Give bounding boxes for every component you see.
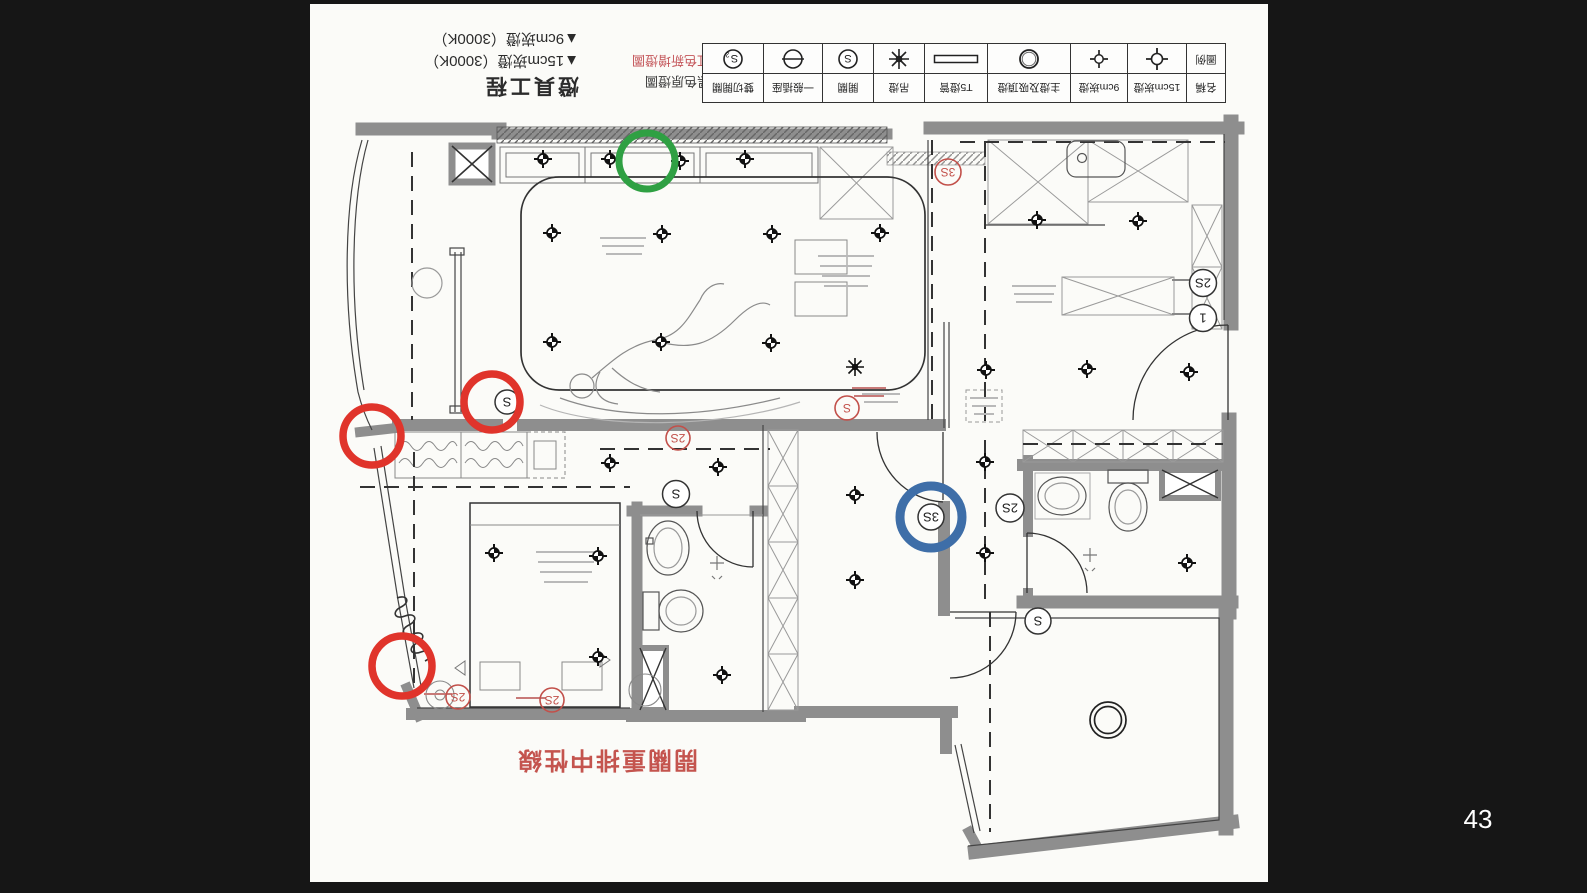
svg-text:3S: 3S <box>941 165 956 179</box>
downlight-symbol <box>713 666 731 684</box>
svg-text:S: S <box>844 53 851 65</box>
downlight-symbol <box>601 454 619 472</box>
downlight-symbol <box>976 544 994 562</box>
downlight-symbol <box>846 486 864 504</box>
svg-text:S: S <box>502 395 511 410</box>
legend-col-ceiling-light: 主燈及吸頂燈 <box>988 44 1071 102</box>
downlight-symbol <box>871 224 889 242</box>
legend-header-column: 名稱 圖例 <box>1187 44 1225 102</box>
page-title: 燈具工程 <box>383 72 579 98</box>
downlight-symbol <box>709 458 727 476</box>
legend-table: 名稱 圖例 15cm崁燈 9cm崁燈 主燈及吸頂燈 T5燈管 吊燈 開關 S 一… <box>702 43 1226 103</box>
presentation-slide: S S 2S S 2S 1 3S 3S 2S 2S 2S S 燈具工程 ▲15c… <box>0 0 1587 893</box>
ceiling-light-symbol <box>1090 702 1126 738</box>
downlight-symbol <box>1178 554 1196 572</box>
annotation-circles <box>343 133 962 696</box>
legend-notes: 黑色原燈圖 紅色新增燈圖 <box>596 45 710 91</box>
downlight-symbol <box>976 453 994 471</box>
title-block: 燈具工程 ▲15cm崁燈（3000K） ▲9cm崁燈（3000K） <box>383 12 579 100</box>
legend-col-downlight-15: 15cm崁燈 <box>1128 44 1187 102</box>
svg-text:S: S <box>671 487 680 502</box>
downlight-symbol <box>977 361 995 379</box>
svg-text:2S: 2S <box>545 693 560 707</box>
downlight-15cm-icon <box>1144 47 1170 73</box>
legend-label: T5燈管 <box>925 74 987 102</box>
bedroom2-closet <box>395 432 565 478</box>
note-original-plan: 黑色原燈圖 <box>596 70 710 91</box>
page-number: 43 <box>1448 804 1508 835</box>
downlight-symbol <box>1129 212 1147 230</box>
pendant-light-symbol <box>846 358 864 376</box>
hatched-wall-band <box>497 127 887 143</box>
downlight-symbol <box>1078 360 1096 378</box>
svg-text:S: S <box>731 53 738 65</box>
downlight-symbol <box>1180 363 1198 381</box>
legend-label: 吊燈 <box>874 74 924 102</box>
svg-text:2S: 2S <box>671 431 686 445</box>
downlight-symbol <box>846 571 864 589</box>
svg-text:1: 1 <box>1199 311 1206 326</box>
svg-text:2S: 2S <box>451 690 466 704</box>
two-way-switch-icon: S2 <box>721 48 745 72</box>
downlight-symbol <box>653 225 671 243</box>
ceiling-light-icon <box>1017 48 1041 72</box>
legend-label: 雙切開關 <box>703 74 763 102</box>
human-figure-sketch <box>540 284 800 423</box>
downlight-symbol <box>543 333 561 351</box>
pendant-light-icon <box>887 48 911 72</box>
downlight-symbol <box>652 333 670 351</box>
svg-text:S: S <box>843 401 851 415</box>
bathroom2 <box>1027 470 1148 593</box>
legend-label: 開關 <box>823 74 873 102</box>
title-bullet-9cm: ▲9cm崁燈（3000K） <box>383 28 579 47</box>
svg-text:2S: 2S <box>1002 501 1018 516</box>
plan-revision-note: 開關重排中性線 <box>498 740 698 780</box>
title-bullet-15cm: ▲15cm崁燈（3000K） <box>383 50 579 69</box>
legend-label: 15cm崁燈 <box>1128 74 1186 102</box>
legend-header-symbol: 圖例 <box>1187 46 1225 74</box>
legend-col-outlet: 一般插座 <box>764 44 823 102</box>
floor-plan-drawing: S S 2S S 2S 1 3S 3S 2S 2S 2S S <box>0 0 1587 893</box>
legend-label: 9cm崁燈 <box>1071 74 1127 102</box>
bathroom1 <box>640 511 763 632</box>
thin-wall-lines <box>347 134 1224 846</box>
downlight-symbol <box>762 334 780 352</box>
legend-col-pendant: 吊燈 <box>874 44 925 102</box>
legend-col-switch: 開關 S <box>823 44 874 102</box>
downlight-symbol <box>589 648 607 666</box>
legend-label: 一般插座 <box>764 74 822 102</box>
downlight-symbol <box>543 224 561 242</box>
annotation-circle-red-1 <box>343 407 401 465</box>
svg-text:3S: 3S <box>923 510 939 525</box>
t5-tube-icon <box>933 54 979 66</box>
legend-header-name: 名稱 <box>1187 74 1225 102</box>
svg-text:2S: 2S <box>1195 276 1211 291</box>
bedroom2 <box>395 503 661 709</box>
switch-icon: S <box>836 48 860 72</box>
legend-col-downlight-9: 9cm崁燈 <box>1071 44 1128 102</box>
legend-col-t5: T5燈管 <box>925 44 988 102</box>
downlight-symbol <box>1028 211 1046 229</box>
legend-label: 主燈及吸頂燈 <box>988 74 1070 102</box>
downlight-symbol <box>485 544 503 562</box>
svg-text:S: S <box>1033 614 1042 629</box>
outlet-icon <box>781 48 805 72</box>
downlight-symbol <box>763 225 781 243</box>
svg-text:2: 2 <box>725 51 729 58</box>
master-bedroom <box>412 177 925 390</box>
legend-col-two-way-switch: 雙切開關 S2 <box>703 44 764 102</box>
downlight-9cm-icon <box>1088 49 1110 71</box>
hatched-window-band <box>887 152 985 165</box>
red-switch-labels: 3S 2S 2S 2S S <box>446 159 961 712</box>
note-added-lights: 紅色新增燈圖 <box>596 49 710 70</box>
